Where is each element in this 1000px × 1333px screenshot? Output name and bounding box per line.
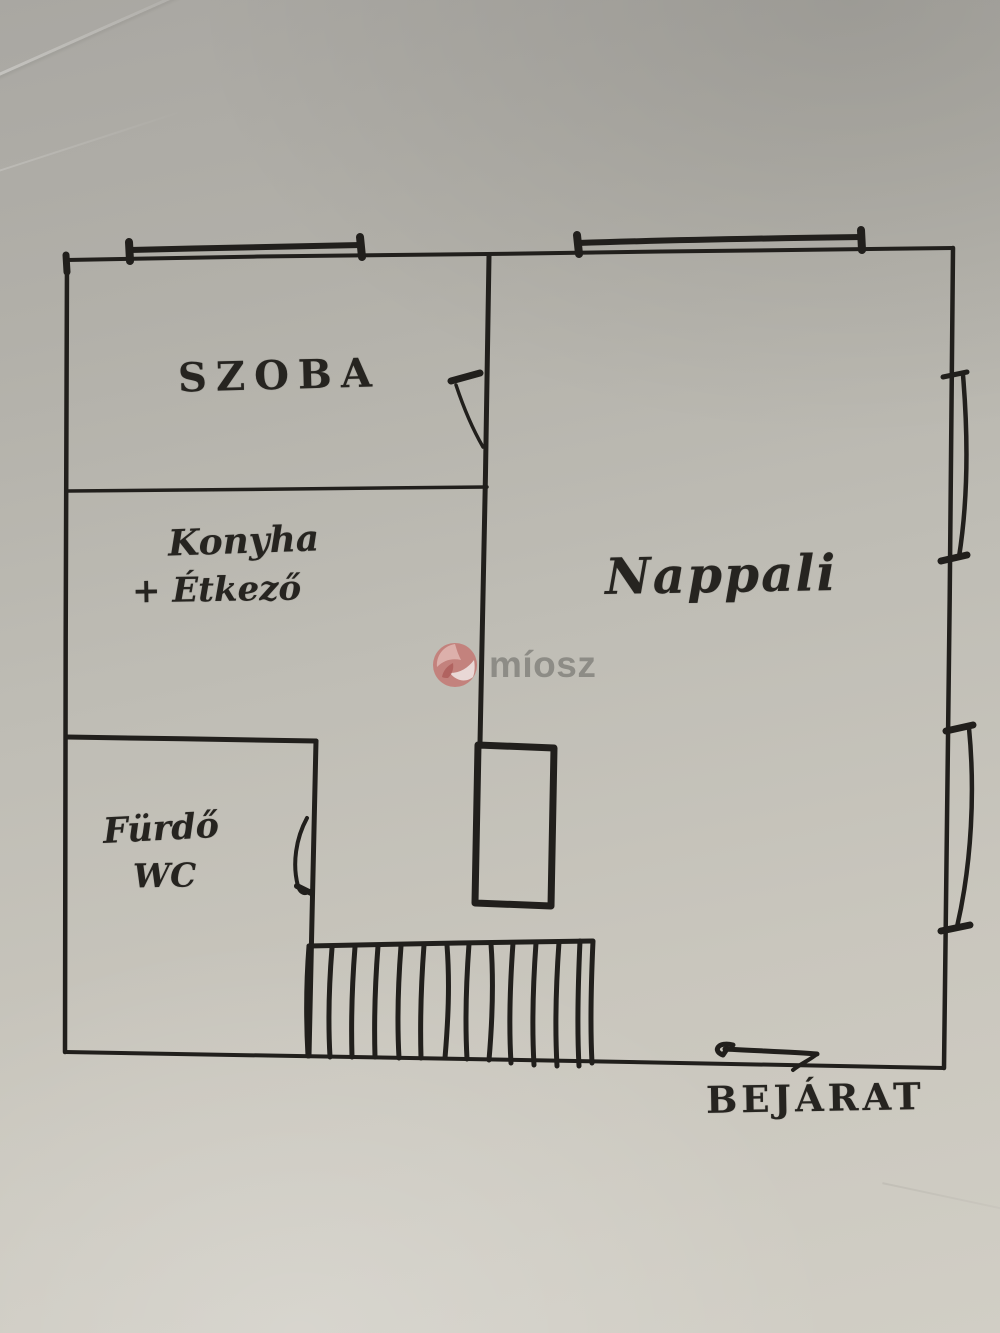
door-swing-szoba <box>451 373 483 447</box>
miosz-logo-icon <box>430 640 480 690</box>
room-label-konyha-line1: Konyha <box>167 517 319 564</box>
chimney-rectangle <box>475 745 554 906</box>
room-label-konyha-line2: + Étkező <box>132 569 302 612</box>
room-label-furdo-line2: WC <box>133 855 197 895</box>
entrance-label-bejarat: BEJÁRAT <box>706 1074 925 1122</box>
door-swing-furdo <box>295 818 311 893</box>
watermark: míosz <box>430 640 596 690</box>
window-right-upper <box>941 372 967 561</box>
room-label-szoba: SZOBA <box>177 349 381 401</box>
room-label-nappali: Nappali <box>605 543 838 606</box>
stairs <box>307 941 593 1066</box>
watermark-text: míosz <box>489 644 596 686</box>
room-label-furdo-line1: Fürdő <box>102 805 220 852</box>
